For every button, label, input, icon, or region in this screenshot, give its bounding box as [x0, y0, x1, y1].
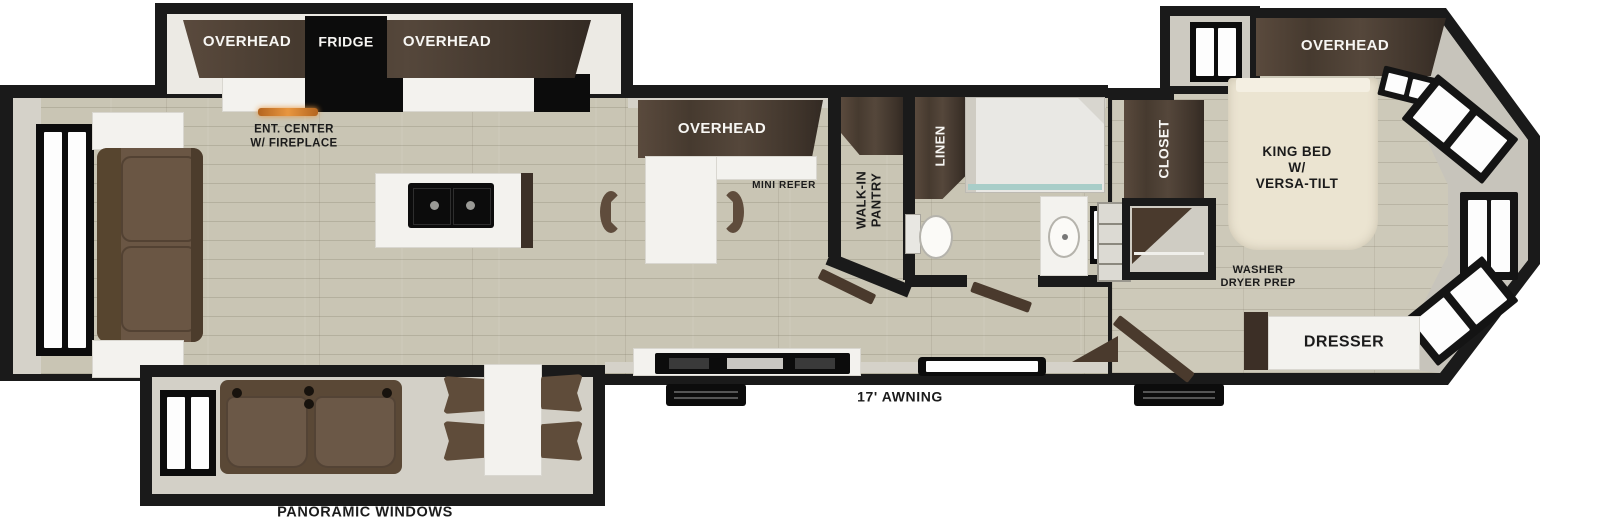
shower [965, 97, 1105, 193]
dresser-back-panel [1244, 312, 1268, 370]
fridge-label: FRIDGE [318, 34, 373, 51]
rear-window [36, 124, 94, 356]
sofa [97, 148, 203, 342]
dinette-chair-top-right [541, 374, 583, 412]
ent-center-counter-left [222, 76, 308, 112]
panoramic-windows-label: PANORAMIC WINDOWS [277, 504, 453, 521]
overhead-rear-left-label: OVERHEAD [203, 33, 291, 51]
dinette-chair-bottom-right [541, 421, 583, 461]
bedroom-slide-window [1190, 22, 1242, 82]
walk-in-pantry-label: WALK-IN PANTRY [854, 171, 885, 229]
theater-seats [220, 380, 402, 474]
washer-dryer-closet [1122, 198, 1216, 280]
fireplace-glow [258, 108, 318, 116]
rv-floorplan: OVERHEAD FRIDGE OVERHEAD ENT. CENTER W/ … [0, 0, 1600, 524]
bath-sink [1048, 216, 1080, 258]
bar-stool-left [600, 191, 622, 233]
bath-bottom-wall-left [905, 275, 967, 287]
rear-wall [0, 85, 13, 377]
cooktop [655, 353, 850, 374]
top-wall-left [0, 85, 160, 98]
bar-stool-right [722, 191, 744, 233]
range-appliance [534, 74, 590, 112]
entry-step-main [666, 384, 746, 406]
king-bed-label: KING BED W/ VERSA-TILT [1256, 144, 1339, 192]
kitchen-overhead-label: OVERHEAD [678, 120, 766, 138]
bedroom-overhead-label: OVERHEAD [1301, 37, 1389, 55]
door-side-window [918, 357, 1046, 376]
pantry-wall [828, 85, 841, 257]
washer-dryer-prep-label: WASHER DRYER PREP [1220, 264, 1295, 290]
overhead-rear-right-label: OVERHEAD [403, 33, 491, 51]
mini-refer-label: MINI REFER [752, 180, 816, 192]
awning-label: 17' AWNING [857, 389, 943, 406]
dresser-label: DRESSER [1304, 334, 1384, 353]
kitchen-island-edge [521, 173, 533, 248]
dinette-table [484, 364, 542, 476]
closet-label: CLOSET [1156, 119, 1173, 178]
kitchen-counter-top [400, 76, 536, 112]
entry-step-bedroom [1134, 384, 1224, 406]
dinette-chair-bottom-left [443, 421, 485, 461]
toilet-bowl [919, 215, 953, 259]
peninsula-counter-stem [645, 156, 717, 264]
slideout-side-window [160, 390, 216, 476]
ent-center-label: ENT. CENTER W/ FIREPLACE [250, 123, 337, 150]
linen-label: LINEN [932, 126, 947, 167]
sofa-end-table-top [92, 112, 184, 150]
dinette-chair-top-left [443, 376, 485, 414]
island-double-sink [408, 183, 494, 228]
fridge-lower [305, 78, 403, 112]
